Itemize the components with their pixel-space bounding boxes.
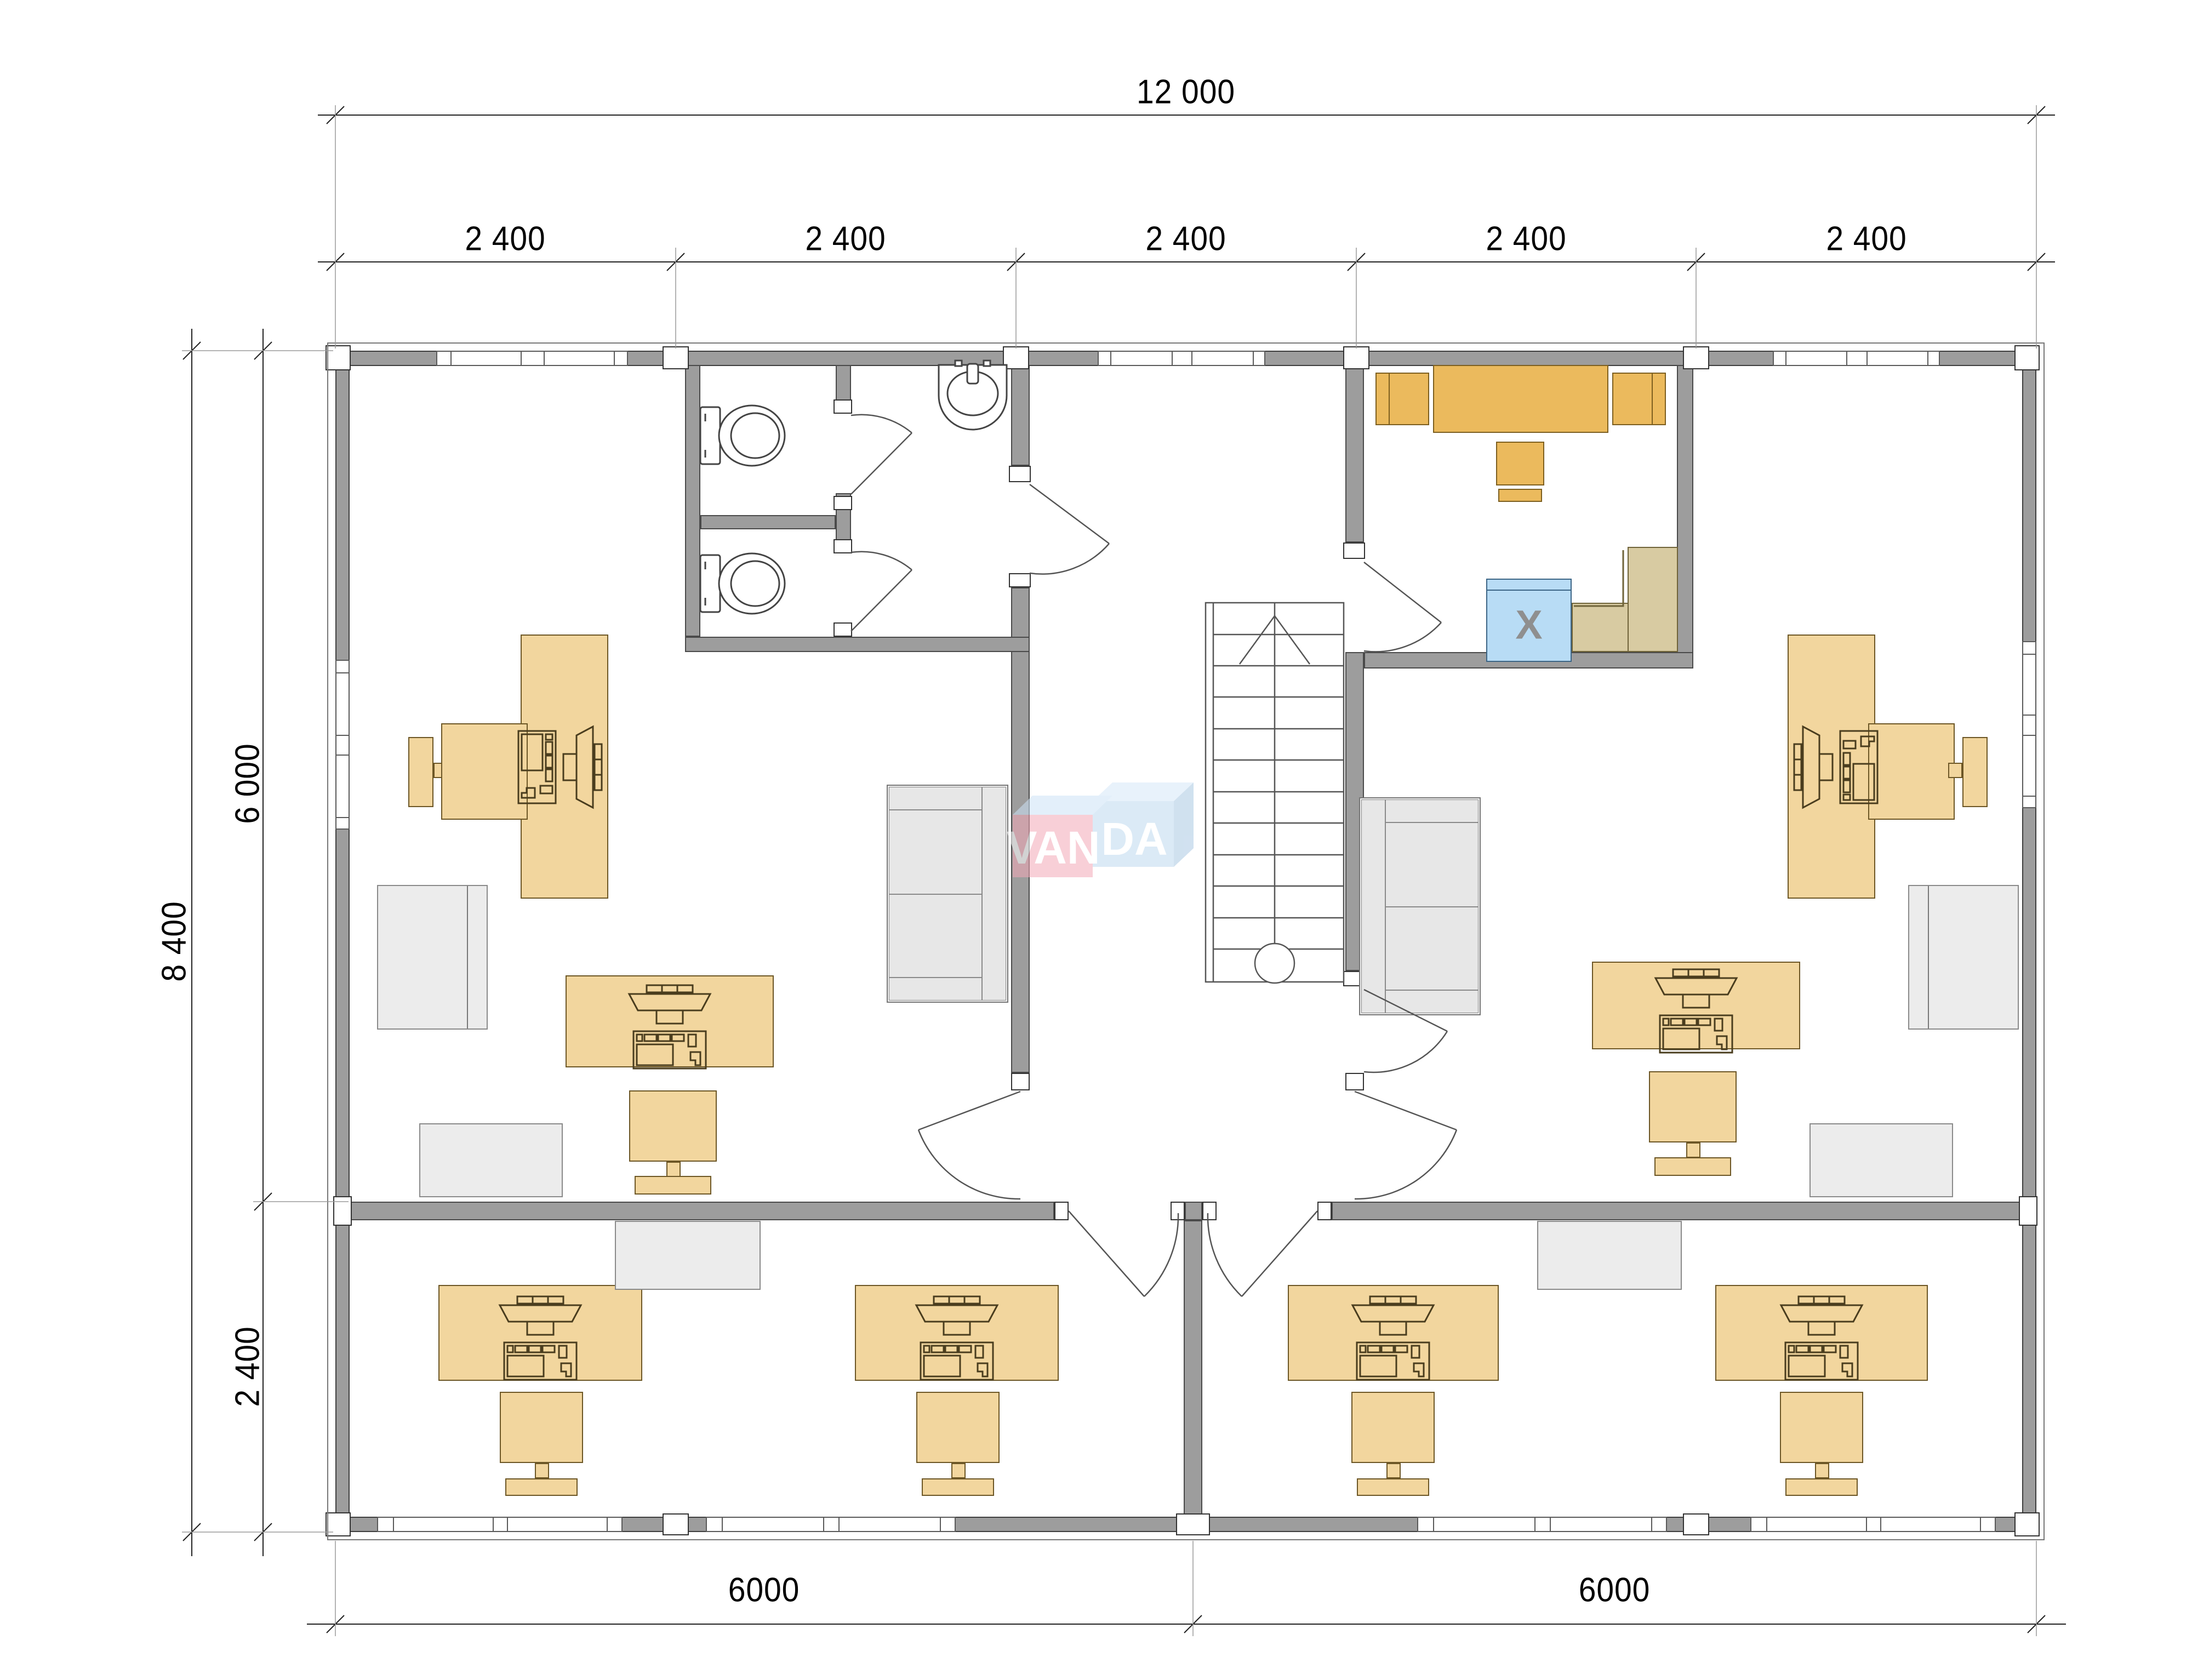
toilet-icon-2	[700, 553, 785, 614]
post-top-corner-right	[2014, 345, 2040, 370]
wall-entry-center-stub	[1185, 1202, 1202, 1220]
desk-bottom-2	[855, 1285, 1059, 1381]
counter-kitchen-horizontal	[1572, 603, 1629, 652]
chair-bottom-4-stem	[1815, 1463, 1829, 1478]
table-right-office-gray	[1809, 1123, 1953, 1197]
post-washroom-door-bottom	[1009, 573, 1031, 587]
chair-right-office-1-back	[1962, 737, 1988, 807]
sofa-left	[887, 785, 1008, 1003]
chair-right-office-2-seat	[1649, 1071, 1737, 1142]
chair-bottom-4-back	[1785, 1478, 1858, 1496]
post-bottom-center	[1176, 1513, 1210, 1535]
chair-bottom-2-stem	[951, 1463, 966, 1478]
post-top-4	[1683, 346, 1709, 369]
window-left	[335, 660, 350, 830]
sofa-right-cushion-1	[1385, 822, 1479, 907]
chair-left-office-1-seat	[441, 723, 528, 820]
chair-right-office-1-stem	[1948, 763, 1962, 778]
dimension-total-height: 8 400	[155, 901, 194, 981]
post-bottom-1	[663, 1513, 689, 1535]
desk-left-office-horizontal	[566, 975, 774, 1067]
post-stall-door-1a	[834, 399, 852, 414]
chair-kitchen-bottom-seat	[1496, 442, 1544, 485]
wall-hall-right-upper	[1345, 365, 1364, 542]
post-stall-door-2a	[834, 539, 852, 553]
chair-right-office-2-stem	[1686, 1142, 1700, 1158]
sofa-left-back	[982, 787, 1006, 1001]
dimension-total-width: 12 000	[1137, 73, 1235, 112]
wall-exterior-left	[335, 366, 350, 1517]
wall-bottom-divider	[1184, 1220, 1202, 1517]
post-entry-left	[1054, 1202, 1069, 1220]
dimension-witness-lines	[182, 105, 2036, 1636]
dimension-bottom-right: 6000	[1579, 1571, 1651, 1610]
dimension-bottom-left: 6000	[728, 1571, 800, 1610]
window-right	[2022, 641, 2036, 808]
chair-bottom-3-back	[1357, 1478, 1429, 1496]
wall-exterior-right	[2022, 366, 2036, 1517]
post-entry-right	[1317, 1202, 1332, 1220]
toilet-icon-1	[700, 405, 785, 466]
window-bottom-3	[1417, 1517, 1667, 1532]
counter-kitchen-vertical	[1628, 547, 1678, 652]
wall-wc-left	[685, 365, 700, 637]
post-washroom-door-top	[1009, 466, 1031, 482]
chair-kitchen-left	[1375, 373, 1429, 425]
counter-inner-edge	[1574, 550, 1623, 606]
wall-wc-bottom	[685, 637, 1030, 652]
dimension-module-3: 2 400	[1145, 220, 1226, 259]
window-top-center	[1098, 351, 1265, 366]
post-hall-left-cap	[1011, 1073, 1030, 1090]
desk-bottom-1	[438, 1285, 642, 1381]
window-bottom-2	[706, 1517, 956, 1532]
sofa-right-back	[1361, 799, 1385, 1013]
chair-kitchen-bottom-back	[1498, 489, 1542, 502]
window-top-left	[436, 351, 628, 366]
post-interior-right	[2019, 1196, 2037, 1226]
table-bottom-left-gray	[615, 1221, 761, 1290]
chair-bottom-1-seat	[500, 1392, 583, 1463]
chair-bottom-3-seat	[1351, 1392, 1435, 1463]
desk-right-office-vertical	[1788, 635, 1875, 899]
dimension-module-4: 2 400	[1486, 220, 1566, 259]
vanda-watermark: VAN DA	[1006, 782, 1194, 877]
table-left-office-gray	[419, 1123, 563, 1197]
sofa-right-cushion-2	[1385, 907, 1479, 990]
chair-left-office-2-stem	[666, 1162, 681, 1177]
appliance-door-line	[1487, 590, 1571, 591]
stairs	[1206, 603, 1344, 983]
sofa-right-arm-top	[1385, 799, 1479, 822]
sofa-left-arm-bottom	[889, 978, 982, 1001]
post-top-1	[663, 346, 689, 369]
post-entry-center-left	[1171, 1202, 1185, 1220]
sofa-right-arm-bottom	[1385, 990, 1479, 1013]
table-bottom-right-gray	[1537, 1221, 1682, 1290]
desk-left-office-vertical	[521, 635, 608, 899]
wall-hall-left-upper	[1011, 365, 1030, 466]
stairs-start-circle	[1255, 944, 1294, 983]
window-top-right	[1773, 351, 1940, 366]
post-entry-center-right	[1202, 1202, 1217, 1220]
chair-bottom-2-back	[922, 1478, 994, 1496]
post-top-corner-left	[326, 345, 351, 370]
dimension-upper-height: 6 000	[229, 743, 267, 824]
dimension-module-1: 2 400	[465, 220, 545, 259]
wall-hall-left-lower	[1011, 587, 1030, 1073]
wall-interior-main-right	[1332, 1202, 2022, 1220]
chair-bottom-1-back	[505, 1478, 578, 1496]
dimension-module-5: 2 400	[1826, 220, 1906, 259]
desk-bottom-3	[1288, 1285, 1499, 1381]
chair-kitchen-right	[1612, 373, 1666, 425]
post-interior-left	[333, 1196, 352, 1226]
post-bottom-corner-right	[2014, 1512, 2040, 1536]
post-bottom-corner-left	[326, 1512, 351, 1536]
cabinet-right-office	[1908, 885, 2019, 1030]
sofa-left-cushion-2	[889, 894, 982, 978]
stairs-up-arrow	[1240, 616, 1310, 664]
post-stall-door-1b	[834, 496, 852, 510]
post-bottom-2	[1683, 1513, 1709, 1535]
sink-icon	[939, 361, 1007, 430]
chair-right-office-2-back	[1654, 1157, 1731, 1176]
table-kitchen	[1433, 365, 1608, 433]
wall-interior-main-left	[350, 1202, 1054, 1220]
sofa-left-cushion-1	[889, 810, 982, 894]
chair-bottom-1-stem	[535, 1463, 549, 1478]
chair-bottom-4-seat	[1780, 1392, 1863, 1463]
post-hall-right-cap	[1345, 1073, 1364, 1090]
post-stall-door-2b	[834, 622, 852, 637]
post-top-3	[1343, 346, 1369, 369]
chair-bottom-3-stem	[1386, 1463, 1401, 1478]
post-kitchen-door	[1343, 542, 1365, 559]
chair-left-office-2-back	[635, 1176, 711, 1195]
chair-right-office-1-seat	[1868, 723, 1955, 820]
watermark-text-da: DA	[1101, 813, 1167, 865]
desk-bottom-4	[1715, 1285, 1928, 1381]
wall-wc-divider	[700, 515, 836, 529]
post-top-2	[1003, 346, 1029, 369]
sofa-left-arm-top	[889, 787, 982, 810]
sofa-right	[1359, 797, 1481, 1015]
chair-left-office-1-back	[408, 737, 433, 807]
desk-right-office-horizontal	[1592, 962, 1800, 1049]
chair-bottom-2-seat	[916, 1392, 1000, 1463]
chair-left-office-2-seat	[629, 1090, 717, 1162]
cabinet-left-office	[377, 885, 488, 1030]
floor-plan: 12 000 2 400 2 400 2 400 2 400 2 400 8 4…	[0, 0, 2192, 1680]
dimension-lower-height: 2 400	[229, 1326, 267, 1407]
window-bottom-4	[1750, 1517, 1996, 1532]
dimension-module-2: 2 400	[805, 220, 886, 259]
wall-kitchen-right	[1677, 365, 1693, 668]
window-bottom-1	[377, 1517, 623, 1532]
appliance-x-mark: X	[1515, 602, 1542, 648]
